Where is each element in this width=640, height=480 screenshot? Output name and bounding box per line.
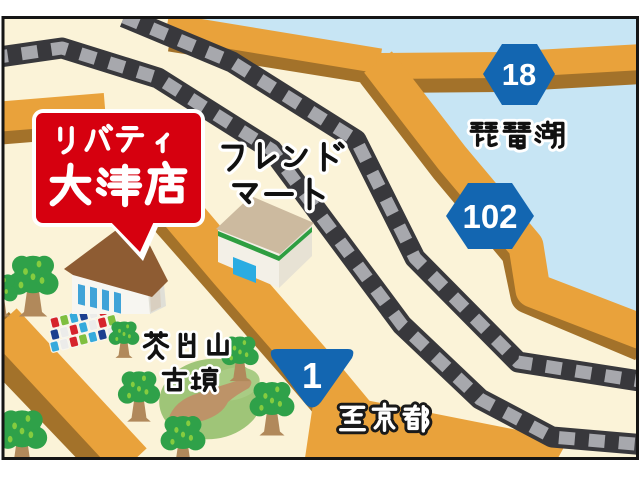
svg-text:102: 102 (462, 198, 517, 235)
svg-text:1: 1 (302, 355, 322, 396)
svg-text:18: 18 (502, 57, 536, 92)
